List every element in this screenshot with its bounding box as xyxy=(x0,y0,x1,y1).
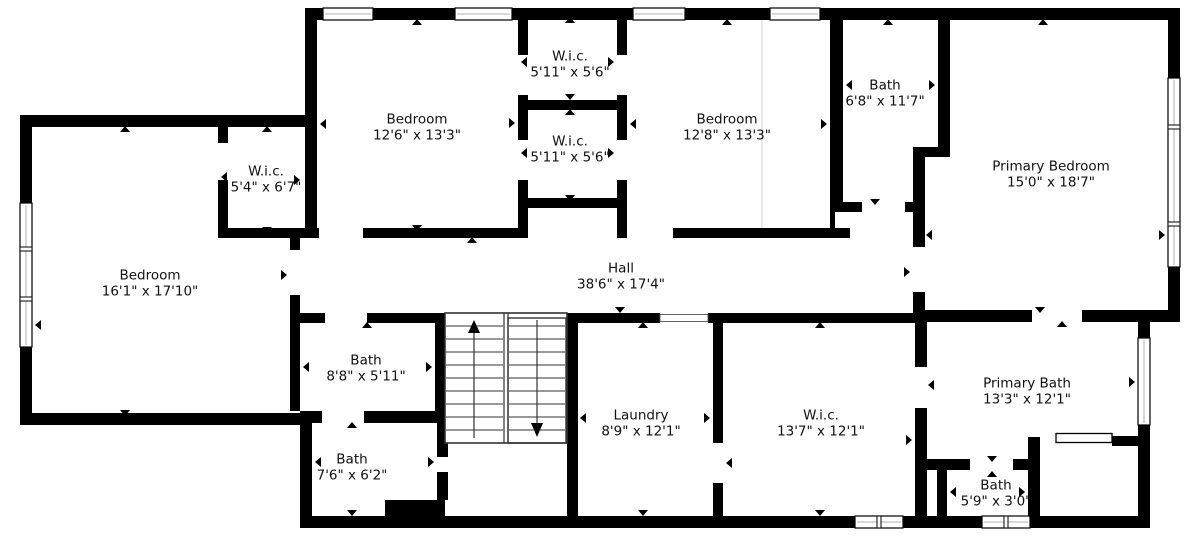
measure-arrow xyxy=(303,362,309,372)
wall-segment xyxy=(305,8,317,238)
sliding-door-leaf xyxy=(1056,434,1112,443)
wall-segment xyxy=(913,147,950,157)
measure-arrow xyxy=(987,456,997,462)
measure-arrow xyxy=(1035,307,1045,313)
wall-segment xyxy=(830,202,862,212)
wall-segment xyxy=(218,127,228,143)
wall-segment xyxy=(1082,310,1180,322)
measure-arrow xyxy=(726,458,732,468)
measure-arrow xyxy=(704,413,710,423)
wall-segment xyxy=(920,516,1150,528)
measure-arrow xyxy=(821,119,827,129)
wall-segment xyxy=(913,292,925,313)
window-divider xyxy=(1168,222,1180,226)
room-label-hall: Hall 38'6" x 17'4" xyxy=(577,261,665,294)
window-divider xyxy=(20,247,32,251)
floor-plan: W.i.c. 5'11" x 5'6" Bedroom 12'6" x 13'3… xyxy=(0,0,1199,541)
wall-segment xyxy=(518,180,528,238)
measure-arrow xyxy=(904,267,910,277)
wall-segment xyxy=(218,180,228,233)
measure-arrow xyxy=(428,457,434,467)
wall-segment xyxy=(305,8,1180,20)
wall-segment xyxy=(518,100,627,110)
measure-arrow xyxy=(521,57,527,67)
wall-segment xyxy=(567,323,578,516)
wall-segment xyxy=(1112,436,1138,446)
room-label-bath-mid: Bath 8'8" x 5'11" xyxy=(326,353,405,386)
window-divider xyxy=(1168,125,1180,129)
window-divider xyxy=(20,297,32,301)
wall-segment xyxy=(567,313,660,323)
room-label-wic-left: W.i.c. 5'4" x 6'7" xyxy=(231,164,302,197)
measure-arrow xyxy=(347,510,357,516)
wall-segment xyxy=(363,228,518,238)
wall-segment xyxy=(518,198,627,208)
window-divider xyxy=(877,516,881,528)
measure-arrow xyxy=(987,471,997,477)
room-label-bath-upper: Bath 6'8" x 11'7" xyxy=(845,78,924,111)
wall-segment xyxy=(617,180,627,238)
wall-segment xyxy=(713,323,723,443)
wall-segment xyxy=(290,295,300,411)
measure-arrow xyxy=(1159,230,1165,240)
measure-arrow xyxy=(950,487,956,497)
wall-segment xyxy=(938,20,950,157)
measure-arrow xyxy=(320,119,326,129)
wall-segment xyxy=(20,413,312,425)
measure-arrow xyxy=(1057,321,1067,327)
measure-arrow xyxy=(615,307,625,313)
measure-arrow xyxy=(426,362,432,372)
wall-segment xyxy=(918,310,1032,322)
measure-arrow xyxy=(870,199,880,205)
wall-segment xyxy=(300,313,325,323)
measure-arrow xyxy=(929,80,935,90)
room-label-bath-lower: Bath 7'6" x 6'2" xyxy=(317,452,388,485)
measure-arrow xyxy=(347,422,357,428)
room-label-laundry: Laundry 8'9" x 12'1" xyxy=(601,408,680,441)
wall-segment xyxy=(300,516,920,528)
wall-segment xyxy=(830,20,843,202)
measure-arrow xyxy=(565,94,575,100)
wall-segment xyxy=(937,470,947,516)
room-label-bedroom-middle: Bedroom 12'8" x 13'3" xyxy=(683,112,771,145)
measure-arrow xyxy=(630,119,636,129)
measure-arrow xyxy=(35,320,41,330)
room-label-bedroom-left: Bedroom 16'1" x 17'10" xyxy=(102,268,199,301)
measure-arrow xyxy=(906,435,912,445)
measure-arrow xyxy=(580,413,586,423)
wall-segment xyxy=(713,483,723,516)
measure-arrow xyxy=(1129,377,1135,387)
measure-arrow xyxy=(928,380,934,390)
room-label-primary-bath: Primary Bath 13'3" x 12'1" xyxy=(983,376,1071,409)
measure-arrow xyxy=(815,510,825,516)
window-divider xyxy=(1004,516,1008,528)
wall-segment xyxy=(915,313,927,367)
door-opening xyxy=(660,315,708,322)
wall-segment xyxy=(300,411,322,423)
wall-segment xyxy=(617,20,627,55)
measure-arrow xyxy=(638,510,648,516)
measure-arrow xyxy=(281,270,287,280)
wall-segment xyxy=(830,212,835,238)
room-label-bedroom-front: Bedroom 12'6" x 13'3" xyxy=(373,112,461,145)
wall-segment xyxy=(20,115,305,127)
wall-segment xyxy=(364,411,447,423)
room-label-wic-big: W.i.c. 13'7" x 12'1" xyxy=(777,408,865,441)
wall-segment xyxy=(437,472,448,500)
room-label-primary-bedroom: Primary Bedroom 15'0" x 18'7" xyxy=(992,159,1110,192)
wall-segment xyxy=(673,228,850,238)
wall-segment xyxy=(435,313,445,411)
measure-arrow xyxy=(926,230,932,240)
wall-segment xyxy=(300,411,312,528)
wall-segment xyxy=(518,20,528,55)
room-label-bath-small: Bath 5'9" x 3'0" xyxy=(961,478,1032,511)
room-label-wic-mid: W.i.c. 5'11" x 5'6" xyxy=(530,134,609,167)
wall-segment xyxy=(913,157,925,247)
measure-arrow xyxy=(521,148,527,158)
wall-segment xyxy=(708,313,915,323)
staircase xyxy=(445,313,567,443)
wall-segment xyxy=(385,500,445,516)
wall-segment xyxy=(915,459,970,470)
room-label-wic-top: W.i.c. 5'11" x 5'6" xyxy=(530,49,609,82)
wall-segment xyxy=(367,313,445,323)
measure-arrow xyxy=(509,118,515,128)
